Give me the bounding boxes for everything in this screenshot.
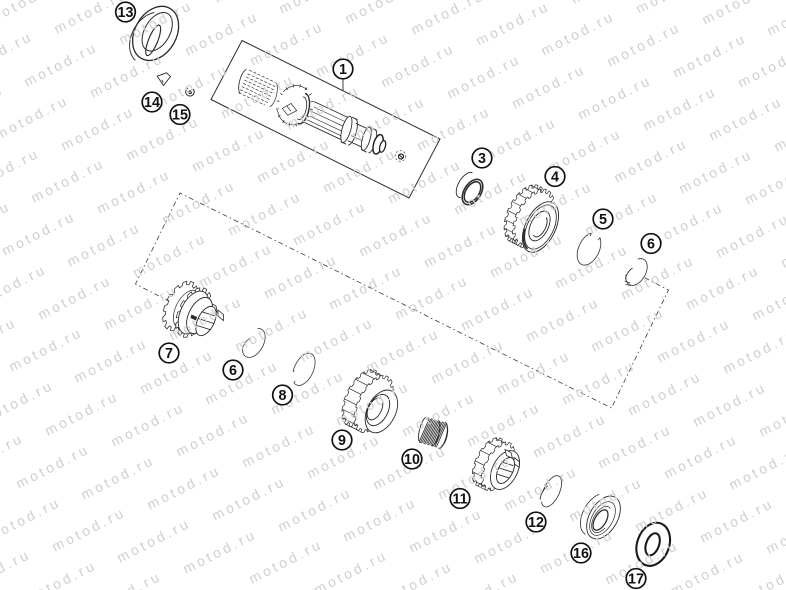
svg-text:14: 14 xyxy=(144,95,160,111)
svg-text:16: 16 xyxy=(573,546,589,562)
svg-text:12: 12 xyxy=(528,515,544,531)
svg-text:17: 17 xyxy=(628,572,644,588)
svg-text:4: 4 xyxy=(551,170,559,186)
svg-text:7: 7 xyxy=(165,346,173,362)
svg-text:6: 6 xyxy=(647,237,655,253)
svg-text:9: 9 xyxy=(338,433,346,449)
svg-text:1: 1 xyxy=(339,62,347,78)
svg-text:11: 11 xyxy=(452,492,467,508)
svg-text:13: 13 xyxy=(118,5,134,21)
svg-text:15: 15 xyxy=(172,108,188,124)
svg-text:6: 6 xyxy=(229,363,237,379)
svg-text:10: 10 xyxy=(404,452,420,468)
svg-text:5: 5 xyxy=(599,212,607,228)
svg-text:8: 8 xyxy=(279,388,287,404)
svg-text:3: 3 xyxy=(478,151,486,167)
